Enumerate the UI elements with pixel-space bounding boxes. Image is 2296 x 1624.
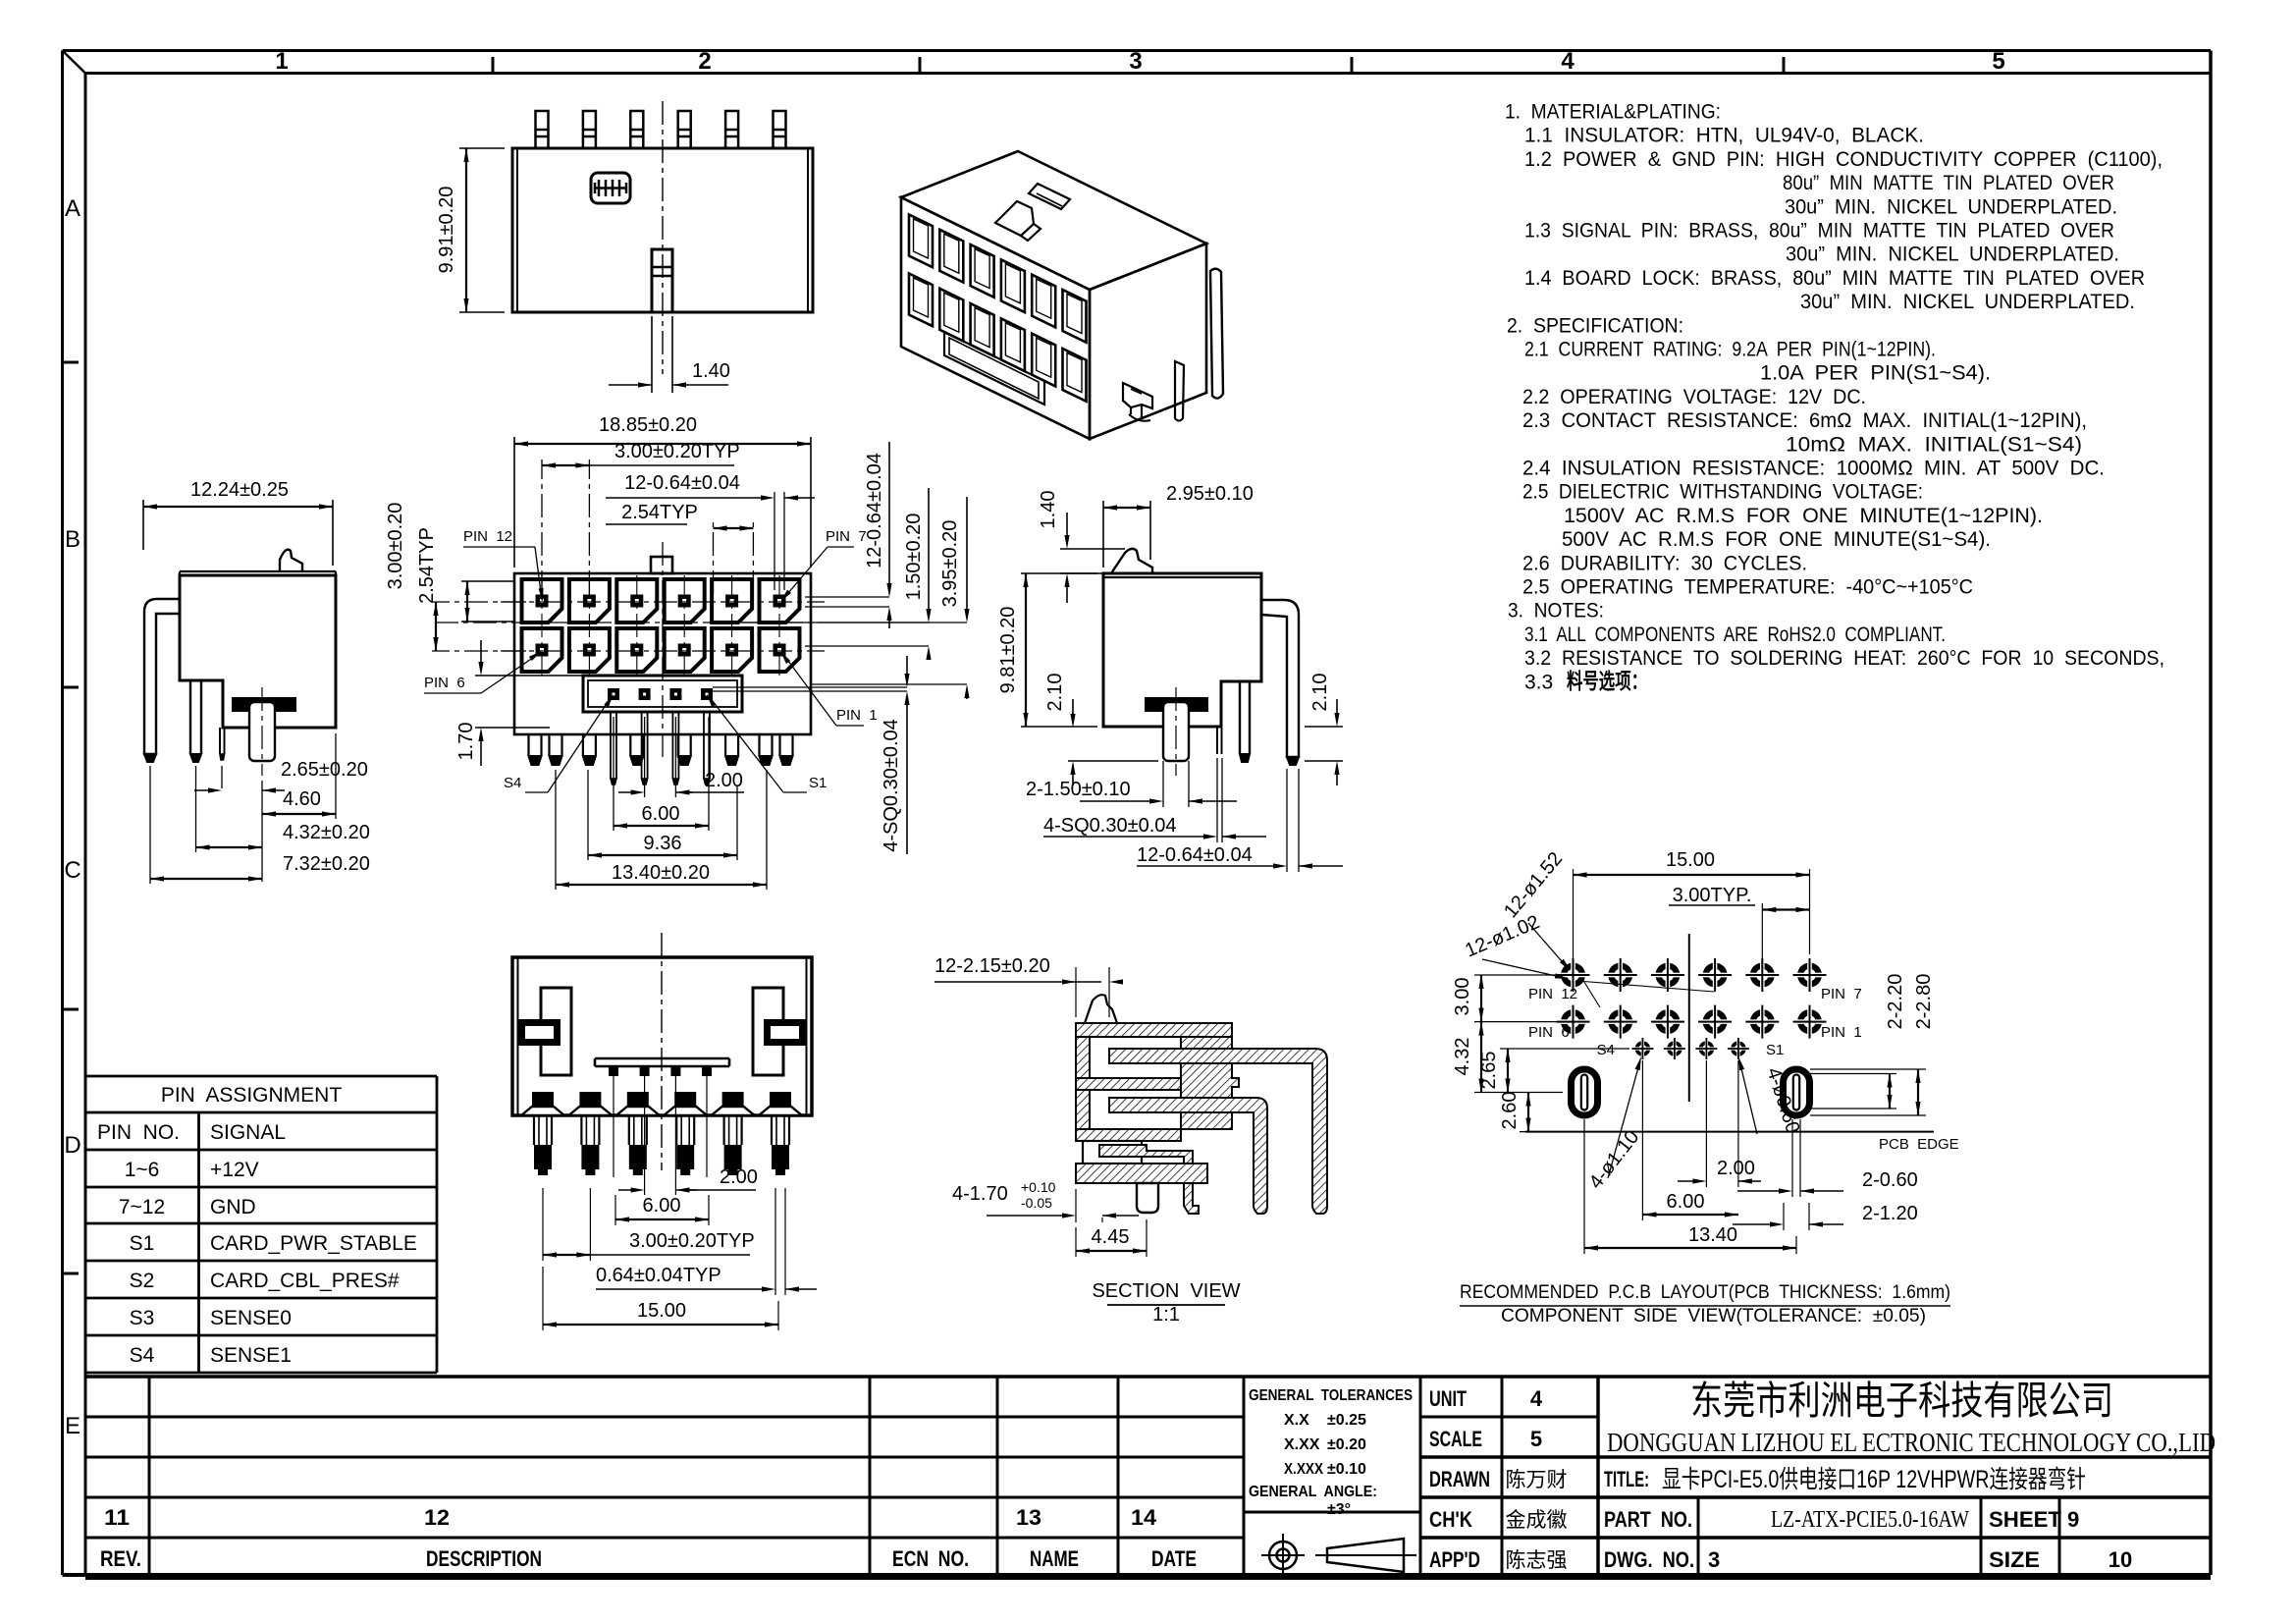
- svg-text:S1: S1: [809, 775, 827, 791]
- svg-text:料号选项：: 料号选项：: [1567, 669, 1647, 693]
- svg-text:DATE: DATE: [1151, 1546, 1197, 1571]
- svg-text:4-1.70: 4-1.70: [952, 1183, 1008, 1205]
- svg-text:2.54TYP: 2.54TYP: [621, 502, 698, 523]
- svg-text:3.00: 3.00: [1452, 978, 1473, 1016]
- svg-text:1. MATERIAL&PLATING:: 1. MATERIAL&PLATING:: [1505, 101, 1721, 124]
- svg-text:PIN NO.: PIN NO.: [97, 1121, 180, 1144]
- svg-text:2. SPECIFICATION:: 2. SPECIFICATION:: [1507, 314, 1683, 337]
- svg-text:C: C: [64, 857, 80, 884]
- svg-text:3.95±0.20: 3.95±0.20: [939, 520, 961, 608]
- svg-text:金成徽: 金成徽: [1506, 1509, 1568, 1532]
- svg-text:6.00: 6.00: [643, 1195, 681, 1217]
- svg-text:2.60: 2.60: [1499, 1092, 1521, 1130]
- svg-text:1.2 POWER & GND PIN: HIGH: 1.2 POWER & GND PIN: HIGH CONDUCTIVITY C…: [1524, 148, 2163, 171]
- svg-text:12.24±0.25: 12.24±0.25: [190, 479, 289, 501]
- svg-text:2-1.50±0.10: 2-1.50±0.10: [1026, 779, 1131, 800]
- svg-text:+12V: +12V: [210, 1159, 259, 1181]
- svg-text:陈志强: 陈志强: [1506, 1549, 1568, 1572]
- svg-text:±0.20: ±0.20: [1327, 1436, 1366, 1453]
- svg-text:2.3 CONTACT RESISTANCE: 6mΩ: 2.3 CONTACT RESISTANCE: 6mΩ MAX. INITIAL…: [1522, 409, 2087, 432]
- svg-text:6.00: 6.00: [642, 803, 680, 825]
- svg-text:3.3: 3.3: [1524, 671, 1553, 693]
- svg-text:UNIT: UNIT: [1429, 1386, 1467, 1411]
- svg-text:DESCRIPTION: DESCRIPTION: [426, 1546, 542, 1571]
- svg-text:2.10: 2.10: [1044, 674, 1066, 712]
- svg-text:RECOMMENDED P.C.B LAYOUT(PCB: RECOMMENDED P.C.B LAYOUT(PCB THICKNESS: …: [1460, 1282, 1950, 1303]
- svg-text:PIN 6: PIN 6: [424, 675, 465, 691]
- svg-text:12: 12: [424, 1505, 450, 1530]
- svg-text:PART NO.: PART NO.: [1604, 1507, 1692, 1532]
- svg-text:4-SQ0.30±0.04: 4-SQ0.30±0.04: [1043, 815, 1177, 837]
- svg-text:S2: S2: [130, 1270, 155, 1292]
- svg-text:S4: S4: [1597, 1042, 1615, 1058]
- svg-text:80u” MIN MATTE TIN PLATED: 80u” MIN MATTE TIN PLATED OVER: [1783, 172, 2114, 194]
- svg-text:PIN 6: PIN 6: [1528, 1024, 1570, 1041]
- svg-text:13.40±0.20: 13.40±0.20: [612, 862, 710, 884]
- svg-text:CARD_CBL_PRES#: CARD_CBL_PRES#: [210, 1270, 400, 1292]
- svg-text:-0.05: -0.05: [1021, 1195, 1052, 1211]
- svg-text:DWG. NO.: DWG. NO.: [1604, 1547, 1694, 1572]
- svg-text:9.81±0.20: 9.81±0.20: [997, 607, 1019, 694]
- svg-text:PIN ASSIGNMENT: PIN ASSIGNMENT: [161, 1084, 343, 1107]
- svg-text:X.XX: X.XX: [1284, 1436, 1320, 1453]
- svg-text:2.6 DURABILITY: 30 CYCLES.: 2.6 DURABILITY: 30 CYCLES.: [1522, 552, 1807, 574]
- svg-text:5: 5: [1530, 1427, 1542, 1451]
- svg-text:CARD_PWR_STABLE: CARD_PWR_STABLE: [210, 1232, 417, 1255]
- svg-text:PIN 12: PIN 12: [1528, 986, 1577, 1002]
- svg-text:PIN 1: PIN 1: [1821, 1024, 1862, 1041]
- svg-text:4: 4: [1530, 1386, 1543, 1411]
- svg-text:2.00: 2.00: [1717, 1158, 1755, 1179]
- svg-text:PCB EDGE: PCB EDGE: [1879, 1136, 1959, 1153]
- svg-text:15.00: 15.00: [637, 1300, 686, 1322]
- svg-text:4.32±0.20: 4.32±0.20: [283, 822, 370, 843]
- svg-text:DRAWN: DRAWN: [1429, 1467, 1490, 1491]
- svg-text:SIGNAL: SIGNAL: [210, 1121, 286, 1144]
- svg-text:4.45: 4.45: [1092, 1226, 1130, 1248]
- svg-text:13: 13: [1016, 1505, 1041, 1530]
- svg-text:SENSE0: SENSE0: [210, 1307, 292, 1329]
- svg-text:1500V AC R.M.S FOR ONE MI: 1500V AC R.M.S FOR ONE MINUTE(1~12PIN).: [1564, 505, 2043, 527]
- svg-text:3.00TYP.: 3.00TYP.: [1673, 885, 1752, 906]
- svg-text:2.65±0.20: 2.65±0.20: [281, 759, 368, 781]
- svg-text:LZ-ATX-PCIE5.0-16AW: LZ-ATX-PCIE5.0-16AW: [1771, 1507, 1969, 1533]
- svg-text:SIZE: SIZE: [1989, 1547, 2040, 1572]
- svg-text:X.XXX: X.XXX: [1284, 1461, 1323, 1478]
- svg-text:0.64±0.04TYP: 0.64±0.04TYP: [596, 1265, 721, 1286]
- svg-text:2.5 DIELECTRIC WITHSTANDING: 2.5 DIELECTRIC WITHSTANDING VOLTAGE:: [1522, 481, 1923, 504]
- svg-text:A: A: [65, 195, 80, 222]
- svg-text:3: 3: [1708, 1547, 1720, 1572]
- svg-text:GENERAL ANGLE:: GENERAL ANGLE:: [1249, 1484, 1377, 1500]
- svg-text:3.00±0.20: 3.00±0.20: [385, 503, 406, 590]
- svg-text:S4: S4: [504, 775, 521, 791]
- svg-text:7.32±0.20: 7.32±0.20: [283, 853, 370, 875]
- svg-text:6.00: 6.00: [1667, 1191, 1705, 1213]
- svg-text:2.2 OPERATING VOLTAGE: 12V: 2.2 OPERATING VOLTAGE: 12V DC.: [1522, 386, 1866, 408]
- svg-text:ECN NO.: ECN NO.: [892, 1546, 969, 1571]
- svg-text:3.00±0.20TYP: 3.00±0.20TYP: [629, 1230, 755, 1252]
- svg-text:1.40: 1.40: [692, 360, 730, 382]
- svg-text:SECTION VIEW: SECTION VIEW: [1092, 1280, 1240, 1302]
- svg-text:+0.10: +0.10: [1021, 1179, 1056, 1195]
- svg-text:10mΩ MAX. INITIAL(S1~S4): 10mΩ MAX. INITIAL(S1~S4): [1786, 433, 2082, 456]
- svg-text:2.65: 2.65: [1478, 1052, 1500, 1090]
- svg-text:S4: S4: [130, 1344, 155, 1367]
- svg-text:12-2.15±0.20: 12-2.15±0.20: [934, 955, 1050, 977]
- svg-text:2.00: 2.00: [720, 1166, 758, 1188]
- svg-text:TITLE:: TITLE:: [1604, 1467, 1649, 1491]
- svg-text:3. NOTES:: 3. NOTES:: [1508, 600, 1604, 623]
- svg-text:NAME: NAME: [1030, 1546, 1079, 1571]
- svg-text:2-2.20: 2-2.20: [1885, 974, 1906, 1030]
- svg-text:GND: GND: [210, 1196, 256, 1218]
- svg-text:REV.: REV.: [100, 1546, 141, 1571]
- svg-text:陈万财: 陈万财: [1506, 1469, 1568, 1491]
- svg-text:4-SQ0.30±0.04: 4-SQ0.30±0.04: [881, 719, 902, 852]
- svg-text:SENSE1: SENSE1: [210, 1344, 292, 1367]
- svg-text:APP'D: APP'D: [1429, 1547, 1480, 1572]
- svg-text:PIN 7: PIN 7: [826, 528, 867, 545]
- svg-text:2.10: 2.10: [1309, 674, 1331, 712]
- svg-text:2.5 OPERATING TEMPERATURE:: 2.5 OPERATING TEMPERATURE: -40°C~+105°C: [1522, 576, 1973, 599]
- svg-text:2.4 INSULATION RESISTANCE:: 2.4 INSULATION RESISTANCE: 1000MΩ MIN. A…: [1522, 458, 2105, 480]
- svg-text:2-1.20: 2-1.20: [1862, 1203, 1918, 1224]
- svg-text:4.60: 4.60: [283, 788, 321, 810]
- svg-text:3.1 ALL COMPONENTS ARE RoH: 3.1 ALL COMPONENTS ARE RoHS2.0 COMPLIANT…: [1524, 623, 1946, 646]
- svg-text:1:1: 1:1: [1152, 1304, 1180, 1326]
- svg-text:9: 9: [2067, 1507, 2079, 1532]
- svg-text:DONGGUAN LIZHOU EL ECTRONIC TE: DONGGUAN LIZHOU EL ECTRONIC TECHNOLOGY C…: [1607, 1428, 2216, 1457]
- svg-text:CH'K: CH'K: [1429, 1507, 1472, 1532]
- svg-text:东莞市利洲电子科技有限公司: 东莞市利洲电子科技有限公司: [1690, 1380, 2113, 1423]
- svg-text:18.85±0.20: 18.85±0.20: [599, 414, 697, 436]
- svg-text:1.40: 1.40: [1038, 491, 1059, 529]
- svg-text:GENERAL TOLERANCES: GENERAL TOLERANCES: [1249, 1387, 1413, 1404]
- svg-text:1.1 INSULATOR: HTN, UL94V-0: 1.1 INSULATOR: HTN, UL94V-0, BLACK.: [1524, 125, 1924, 147]
- svg-text:SCALE: SCALE: [1429, 1427, 1482, 1451]
- svg-text:COMPONENT SIDE VIEW(TOLERANC: COMPONENT SIDE VIEW(TOLERANCE: ±0.05): [1501, 1306, 1926, 1326]
- svg-text:±3°: ±3°: [1327, 1501, 1351, 1518]
- svg-text:1.0A PER PIN(S1~S4).: 1.0A PER PIN(S1~S4).: [1760, 362, 1991, 385]
- svg-text:PIN 12: PIN 12: [463, 528, 512, 545]
- svg-text:7~12: 7~12: [119, 1196, 165, 1218]
- svg-text:9.36: 9.36: [644, 833, 682, 854]
- svg-text:3.00±0.20TYP: 3.00±0.20TYP: [614, 441, 740, 462]
- svg-text:±0.10: ±0.10: [1327, 1461, 1366, 1478]
- svg-text:9.91±0.20: 9.91±0.20: [436, 187, 457, 274]
- svg-text:±0.25: ±0.25: [1327, 1412, 1366, 1429]
- svg-text:14: 14: [1131, 1505, 1157, 1530]
- svg-text:S3: S3: [130, 1307, 155, 1329]
- svg-text:15.00: 15.00: [1666, 849, 1715, 871]
- svg-text:2.54TYP: 2.54TYP: [416, 527, 438, 604]
- svg-text:2: 2: [698, 48, 711, 75]
- svg-text:B: B: [65, 526, 80, 553]
- svg-text:显卡PCI-E5.0供电接口16P 12VHPWR连接器弯针: 显卡PCI-E5.0供电接口16P 12VHPWR连接器弯针: [1662, 1466, 2086, 1493]
- svg-text:13.40: 13.40: [1688, 1224, 1737, 1246]
- svg-text:1: 1: [275, 48, 288, 75]
- svg-text:1.4 BOARD LOCK: BRASS, 80u: 1.4 BOARD LOCK: BRASS, 80u” MIN MATTE TI…: [1524, 267, 2145, 290]
- svg-text:4: 4: [1561, 48, 1575, 75]
- svg-text:12-0.64±0.04: 12-0.64±0.04: [864, 453, 885, 568]
- svg-text:1.70: 1.70: [455, 723, 477, 761]
- svg-text:S1: S1: [1766, 1042, 1784, 1058]
- svg-text:2.1 CURRENT RATING: 9.2A P: 2.1 CURRENT RATING: 9.2A PER PIN(1~12PIN…: [1524, 339, 1936, 361]
- svg-text:11: 11: [104, 1505, 130, 1530]
- svg-text:3: 3: [1129, 48, 1142, 75]
- svg-text:30u” MIN. NICKEL UNDERPLATE: 30u” MIN. NICKEL UNDERPLATED.: [1800, 291, 2135, 313]
- svg-text:4.32: 4.32: [1452, 1038, 1473, 1076]
- svg-text:1~6: 1~6: [125, 1159, 160, 1181]
- svg-text:30u” MIN. NICKEL UNDERPLATE: 30u” MIN. NICKEL UNDERPLATED.: [1785, 195, 2117, 218]
- svg-text:30u” MIN. NICKEL UNDERPLATE: 30u” MIN. NICKEL UNDERPLATED.: [1786, 244, 2119, 266]
- svg-text:12-0.64±0.04: 12-0.64±0.04: [624, 472, 740, 494]
- svg-text:12-0.64±0.04: 12-0.64±0.04: [1137, 844, 1253, 866]
- svg-text:D: D: [64, 1132, 80, 1159]
- svg-text:2-0.60: 2-0.60: [1862, 1169, 1918, 1191]
- svg-text:500V AC R.M.S FOR ONE MIN: 500V AC R.M.S FOR ONE MINUTE(S1~S4).: [1562, 528, 1991, 551]
- svg-text:2-2.80: 2-2.80: [1913, 974, 1935, 1030]
- svg-text:E: E: [65, 1413, 80, 1439]
- svg-text:2.95±0.10: 2.95±0.10: [1166, 483, 1254, 505]
- svg-text:10: 10: [2109, 1547, 2132, 1572]
- svg-text:PIN 1: PIN 1: [836, 707, 878, 724]
- svg-text:SHEET: SHEET: [1989, 1507, 2062, 1532]
- svg-text:5: 5: [1992, 48, 2004, 75]
- svg-text:X.X: X.X: [1284, 1412, 1309, 1429]
- svg-text:1.50±0.20: 1.50±0.20: [903, 514, 925, 601]
- svg-text:1.3 SIGNAL PIN: BRASS, 80u: 1.3 SIGNAL PIN: BRASS, 80u” MIN MATTE TI…: [1524, 220, 2114, 243]
- svg-text:PIN 7: PIN 7: [1821, 986, 1862, 1002]
- svg-text:3.2 RESISTANCE TO SOLDERING: 3.2 RESISTANCE TO SOLDERING HEAT: 260°C …: [1524, 647, 2164, 670]
- svg-text:S1: S1: [130, 1232, 155, 1255]
